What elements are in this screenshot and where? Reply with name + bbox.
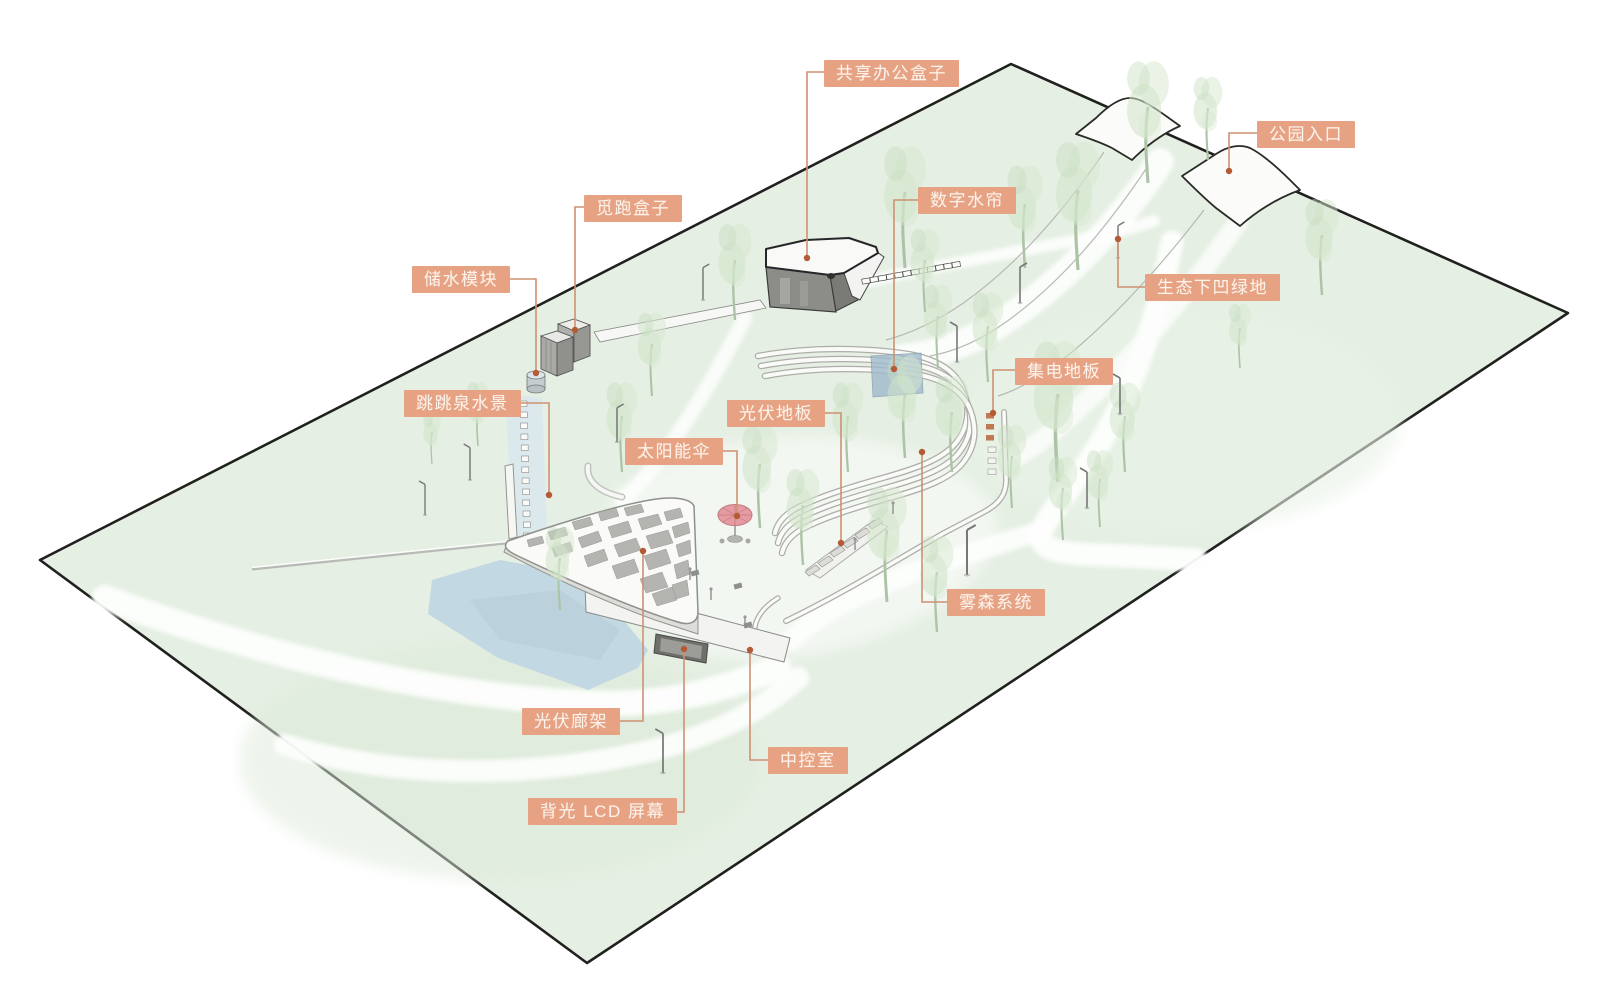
label-park-entrance: 公园入口 xyxy=(1257,121,1355,148)
chair xyxy=(720,539,725,544)
office-box-door xyxy=(827,273,835,279)
label-eco-sunken-greenland: 生态下凹绿地 xyxy=(1145,274,1280,301)
label-pv-gallery-canopy: 光伏廊架 xyxy=(522,708,620,735)
label-fog-mist-system: 雾森系统 xyxy=(947,589,1045,616)
page: 共享办公盒子 公园入口 觅跑盒子 数字水帘 储水模块 生态下凹绿地 跳跳泉水景 … xyxy=(0,0,1600,991)
label-pv-floor: 光伏地板 xyxy=(727,400,825,427)
chair xyxy=(746,539,751,544)
label-mipao-box: 觅跑盒子 xyxy=(584,195,682,222)
label-backlit-lcd-screen: 背光 LCD 屏幕 xyxy=(528,798,677,825)
lawn-shading xyxy=(960,310,1400,530)
label-control-room: 中控室 xyxy=(768,747,848,774)
label-solar-umbrella: 太阳能伞 xyxy=(625,438,723,465)
label-digital-water-curtain: 数字水帘 xyxy=(918,187,1016,214)
table xyxy=(728,536,743,543)
label-water-storage-module: 储水模块 xyxy=(412,266,510,293)
label-jumping-fountain: 跳跳泉水景 xyxy=(404,390,521,417)
site-plan-illustration xyxy=(0,0,1600,991)
label-shared-office-box: 共享办公盒子 xyxy=(824,60,959,87)
label-collector-floor: 集电地板 xyxy=(1015,358,1113,385)
